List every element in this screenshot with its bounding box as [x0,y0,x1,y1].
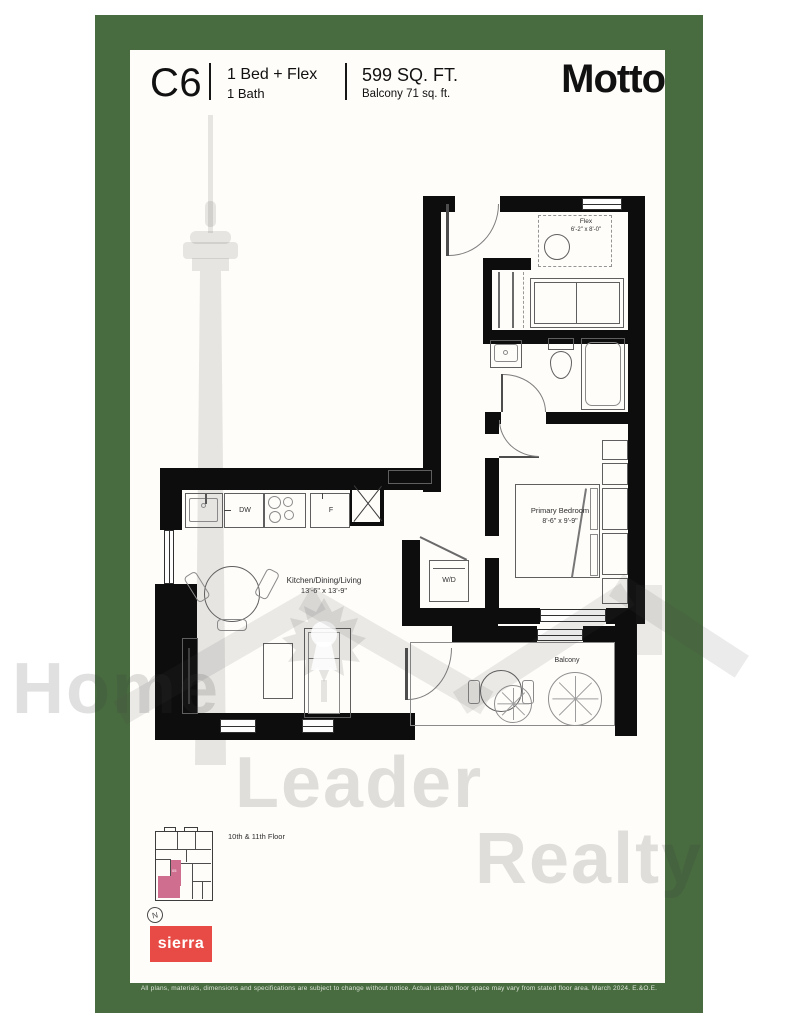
bedroom-door-swing [499,420,539,457]
keyplan-unit-label: 05 [172,868,176,873]
dining-table [204,566,260,622]
wd-door-panel [420,536,468,561]
flex-label: Flex 6'-2" x 8'-0" [560,218,612,235]
floorplan-flyer: { "header": { "unit_code": "C6", "bed_co… [0,0,796,1030]
bed-pillow-2 [590,534,598,576]
closet-rod [523,272,524,328]
bedroom-name: Primary Bedroom [531,506,589,515]
dining-chair-3 [217,619,247,631]
toilet-tank [548,338,574,350]
wall-wd-left [402,540,420,610]
washer-dryer-door-line [433,568,465,569]
bedroom-storage-3 [602,488,628,530]
fridge-label: F [312,506,350,515]
bedroom-dims: 8'-6" x 9'-9" [542,518,577,525]
bedroom-label: Primary Bedroom 8'-6" x 9'-9" [520,506,600,526]
north-letter: N [151,910,159,920]
bath-config: 1 Bath [227,86,265,101]
wall-bedroom-left [485,458,499,536]
hall-shelf [388,470,432,484]
bath-sink-drain [503,350,508,355]
bedroom-storage-2 [602,463,628,485]
toilet-bowl [550,351,572,379]
kitchen-label: Kitchen/Dining/Living 13'-6" x 13'-9" [269,576,379,597]
burner-2 [283,497,293,507]
kitchen-side-window [164,530,174,584]
kitchen-sink-basin [189,498,218,522]
bedroom-storage-1 [602,440,628,460]
balcony-label: Balcony [537,656,597,665]
wall-balcony-right [615,624,637,736]
leaf-keyhole-watermark [282,598,366,704]
closet-door-2 [512,272,514,328]
wall-kitchen-left-stub [160,468,182,530]
bed [515,484,600,578]
disclaimer-text: All plans, materials, dimensions and spe… [95,985,703,992]
flex-sofa-divider [576,282,577,324]
kitchen-name: Kitchen/Dining/Living [287,576,362,585]
living-window-1 [220,719,256,733]
flex-dims: 6'-2" x 8'-0" [571,227,601,233]
burner-3 [269,511,281,523]
laundry-label: W/D [429,576,469,585]
wall-bedroom-left-post [485,424,499,434]
sierra-logo-text: sierra [158,935,205,953]
kitchen-faucet-lever [205,494,207,504]
living-window-2 [302,719,334,733]
bathtub-basin [585,342,621,406]
tv-console [182,638,198,714]
balcony-area: Balcony 71 sq. ft. [362,88,450,100]
balcony-plant-large [548,672,602,726]
wall-bedroom-bottom-b [606,608,628,624]
burner-4 [284,510,294,520]
flex-name: Flex [580,218,592,225]
wall-balcony-top-a [452,626,537,643]
header-divider-1 [209,63,211,100]
closet-door-1 [498,272,500,328]
wall-balcony-top-b [583,626,615,643]
wall-entry-left [423,196,441,492]
flex-top-window [582,198,622,210]
balcony-chair-left [468,680,480,704]
living-balcony-window [537,629,583,641]
tv-screen [188,648,190,704]
header-divider-2 [345,63,347,100]
wall-wd-bottom [402,608,498,626]
keyplan-caption: 10th & 11th Floor [228,832,285,841]
wall-wd-right [485,558,499,610]
key-plan: 05 [155,831,213,901]
balcony-plant-small [494,685,532,723]
wall-bedroom-bottom-a [498,608,540,624]
wall-living-bottom [155,713,415,740]
wall-closet-left [483,258,492,344]
sierra-logo: sierra [150,926,212,962]
bedroom-storage-4 [602,533,628,575]
flex-sofa-seat [534,282,620,324]
floor-plan: Flex 6'-2" x 8'-0" Primary Bedroom 8'-6"… [152,188,664,744]
brand-logo: Motto [470,57,665,102]
burner-1 [268,496,281,509]
keyplan-tab-1 [164,827,176,832]
bedroom-storage-5 [602,578,628,604]
bed-config: 1 Bed + Flex [227,66,317,84]
fridge-tick [322,493,323,499]
wall-bedroom-top [546,412,628,424]
unit-area: 599 SQ. FT. [362,65,458,86]
dishwasher-label: DW [226,506,264,515]
entry-door-swing [449,204,499,256]
wall-right [628,196,645,624]
unit-code: C6 [150,61,202,106]
keyplan-unit-block [158,876,180,898]
wall-top-right [500,196,645,212]
kitchen-dims: 13'-6" x 13'-9" [301,586,347,595]
bedroom-window [540,609,606,622]
bath-door-swing [503,374,546,412]
flex-table [544,234,570,260]
